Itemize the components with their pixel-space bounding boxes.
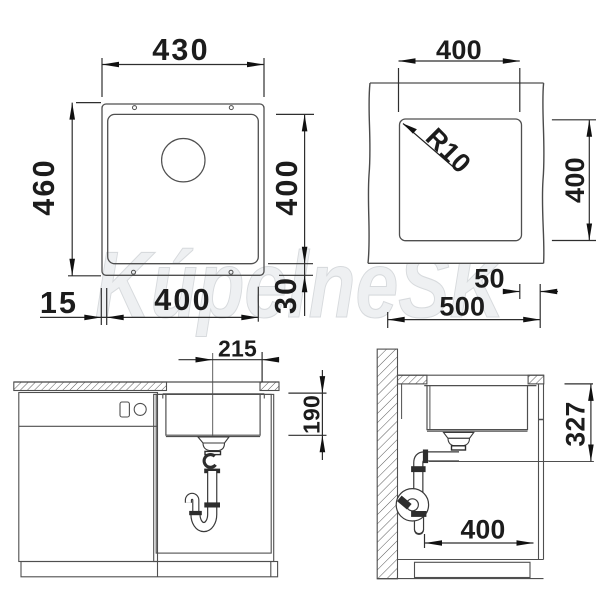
svg-text:215: 215	[218, 336, 257, 362]
svg-text:500: 500	[439, 292, 485, 322]
svg-text:30: 30	[269, 276, 303, 314]
svg-text:400: 400	[436, 35, 482, 65]
svg-text:400: 400	[270, 158, 304, 216]
svg-text:400: 400	[154, 283, 212, 317]
svg-text:430: 430	[152, 33, 210, 67]
svg-text:400: 400	[560, 157, 590, 203]
svg-text:400: 400	[460, 515, 505, 545]
svg-text:460: 460	[27, 158, 61, 216]
svg-text:327: 327	[561, 401, 591, 446]
svg-text:15: 15	[40, 286, 78, 320]
svg-text:190: 190	[299, 395, 325, 434]
svg-text:50: 50	[474, 264, 505, 294]
